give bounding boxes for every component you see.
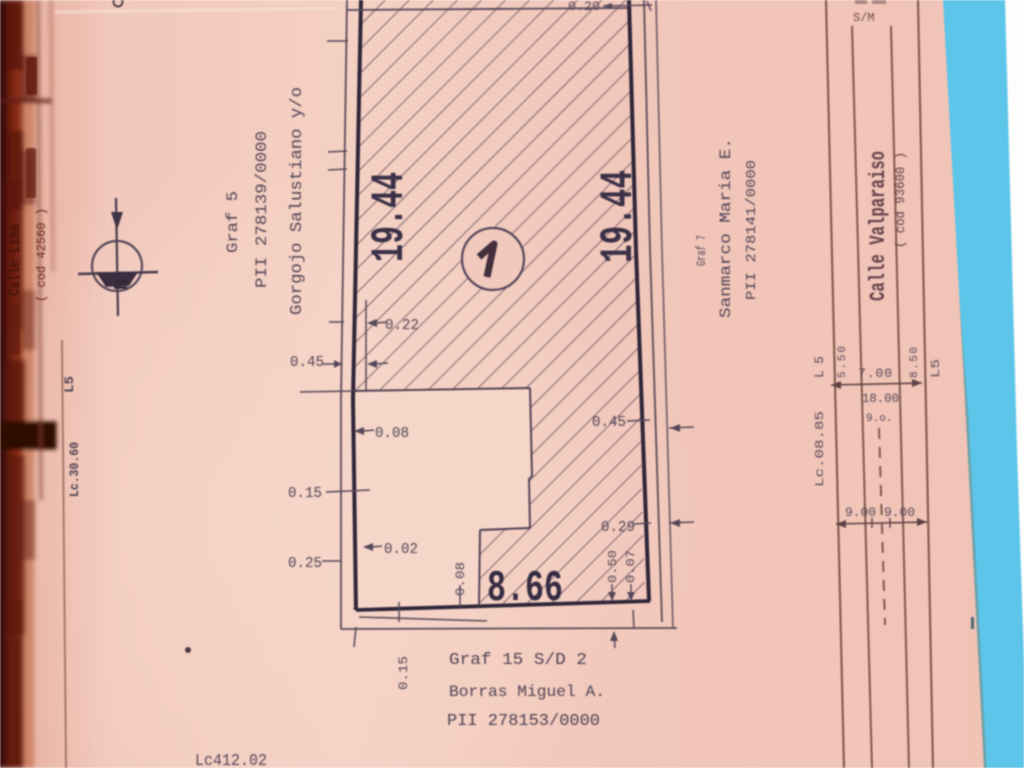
svg-text:19.44: 19.44 <box>593 170 645 263</box>
svg-text:S/M: S/M <box>853 11 875 25</box>
svg-text:PII 278141/0000: PII 278141/0000 <box>744 160 760 300</box>
svg-text:Sanmarco Maria E.: Sanmarco Maria E. <box>717 138 735 318</box>
svg-text:0.20: 0.20 <box>568 0 600 14</box>
svg-text:0.50: 0.50 <box>606 550 620 583</box>
svg-text:Borras Miguel A.: Borras Miguel A. <box>449 683 605 701</box>
svg-text:0.29: 0.29 <box>601 519 635 536</box>
svg-text:8.50: 8.50 <box>909 347 921 378</box>
svg-text:5.50: 5.50 <box>837 346 849 378</box>
svg-text:0.15: 0.15 <box>396 656 411 690</box>
svg-text:L5: L5 <box>929 359 943 378</box>
svg-text:8.66: 8.66 <box>487 564 563 614</box>
svg-text:Lc.08.85: Lc.08.85 <box>813 411 827 487</box>
svg-text:0.22: 0.22 <box>385 317 419 334</box>
svg-text:0.25: 0.25 <box>288 555 322 572</box>
svg-text:Lc412.02: Lc412.02 <box>195 752 267 768</box>
svg-text:PII 278153/0000: PII 278153/0000 <box>447 711 600 730</box>
svg-text:N: N <box>111 279 133 290</box>
svg-text:Graf 5: Graf 5 <box>224 191 242 253</box>
svg-text:Graf 15 S/D 2: Graf 15 S/D 2 <box>449 650 587 669</box>
svg-text:7.00: 7.00 <box>858 366 892 381</box>
svg-text:9.o.: 9.o. <box>866 413 892 425</box>
svg-text:19.44: 19.44 <box>364 172 416 262</box>
svg-text:18.00: 18.00 <box>862 391 899 406</box>
svg-text:0.02: 0.02 <box>384 541 418 558</box>
svg-text:9.00: 9.00 <box>845 505 876 520</box>
svg-text:Gorgojo Salustiano y/o: Gorgojo Salustiano y/o <box>287 87 306 315</box>
svg-text:0.07: 0.07 <box>624 550 638 583</box>
svg-text:0.15: 0.15 <box>288 485 322 502</box>
svg-text:Graf 7: Graf 7 <box>694 235 709 266</box>
svg-text:Calle Lima: Calle Lima <box>6 224 24 296</box>
svg-text:( cod 42560 ): ( cod 42560 ) <box>34 208 49 302</box>
svg-text:0.45: 0.45 <box>290 354 324 371</box>
svg-text:0.08: 0.08 <box>375 425 409 442</box>
svg-text:Lc.30.60: Lc.30.60 <box>67 442 82 497</box>
svg-text:0.45: 0.45 <box>592 414 626 431</box>
svg-text:PII 278139/0000: PII 278139/0000 <box>253 131 271 288</box>
svg-text:9.00: 9.00 <box>884 505 915 520</box>
svg-text:( cod 93600 ): ( cod 93600 ) <box>893 152 908 248</box>
svg-text:Calle Valparaiso: Calle Valparaiso <box>866 151 891 301</box>
svg-text:L5: L5 <box>62 376 77 393</box>
